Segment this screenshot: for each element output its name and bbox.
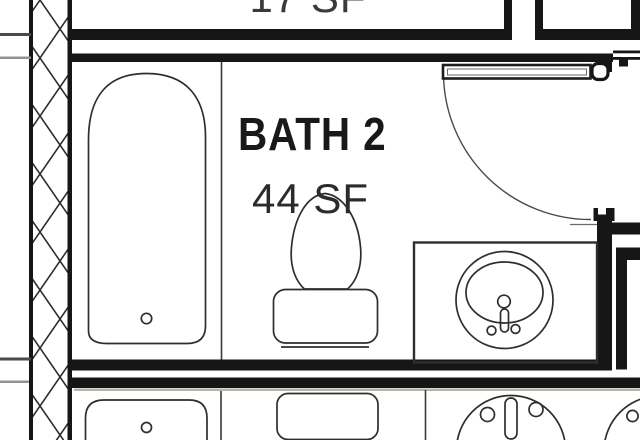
lower-sink-faucet-icon	[505, 398, 517, 439]
door-hinge-icon	[592, 64, 608, 80]
toilet-bowl-outline	[291, 194, 361, 290]
wall-top-edge-right	[631, 0, 640, 40]
wall-stub-right	[535, 0, 543, 40]
lower-sink-handle-right-icon	[529, 403, 543, 417]
lower-bathroom-fixtures	[86, 394, 640, 440]
door-leaf	[443, 65, 591, 79]
bathtub-drain-icon	[141, 313, 151, 323]
lower-sink-handle-left-icon	[481, 408, 495, 422]
lower-bathtub-drain-icon	[142, 423, 152, 433]
lower-right-sink-basin	[604, 396, 640, 440]
wall-lower-rooms-top	[70, 378, 640, 389]
toilet-tank-outline	[274, 290, 378, 344]
walls	[70, 0, 640, 391]
hatched-wall-icon	[29, 0, 72, 440]
sink-handle-left-icon	[487, 326, 496, 335]
sink-faucet-base-icon	[498, 295, 511, 308]
toilet-icon	[274, 194, 378, 348]
wall-thin-upper	[613, 51, 640, 54]
wall-stub-left	[504, 0, 512, 40]
sink-basin-outer	[456, 252, 553, 349]
wall-thin-lower	[613, 57, 640, 60]
lower-right-sink-hole-icon	[627, 410, 638, 421]
door-jamb-notch	[598, 208, 606, 215]
sink-handle-right-icon	[511, 325, 520, 334]
wall-top-right	[535, 29, 640, 40]
wall-bath2-top	[70, 54, 590, 63]
bathtub-outline	[89, 74, 206, 344]
floor-plan: 17 SF BATH 2 44 SF	[0, 0, 640, 440]
wall-thin-notch	[619, 60, 628, 67]
lower-sink-basin	[457, 396, 566, 440]
plan-linework	[0, 0, 640, 440]
wall-lower-right-room-left	[616, 248, 627, 370]
vanity-sink-icon	[414, 243, 597, 363]
lower-toilet-tank-outline	[277, 394, 378, 440]
wall-top-left	[70, 29, 512, 40]
wall-bath2-right	[597, 218, 612, 364]
sink-basin-inner-rim	[466, 262, 543, 323]
door-swing-arc	[444, 76, 592, 220]
lower-bathtub-outline	[86, 400, 208, 440]
vanity-counter-outline	[414, 243, 597, 363]
wall-scan-tint-line	[74, 389, 640, 392]
wall-bath2-bottom	[70, 360, 612, 371]
sink-faucet-spout-icon	[501, 309, 509, 332]
wall-branch-right	[612, 223, 640, 235]
door-symbol	[443, 64, 608, 220]
wall-tick-lines	[0, 33, 31, 383]
door-jamb-top	[590, 54, 613, 63]
bathtub-icon	[89, 74, 206, 344]
